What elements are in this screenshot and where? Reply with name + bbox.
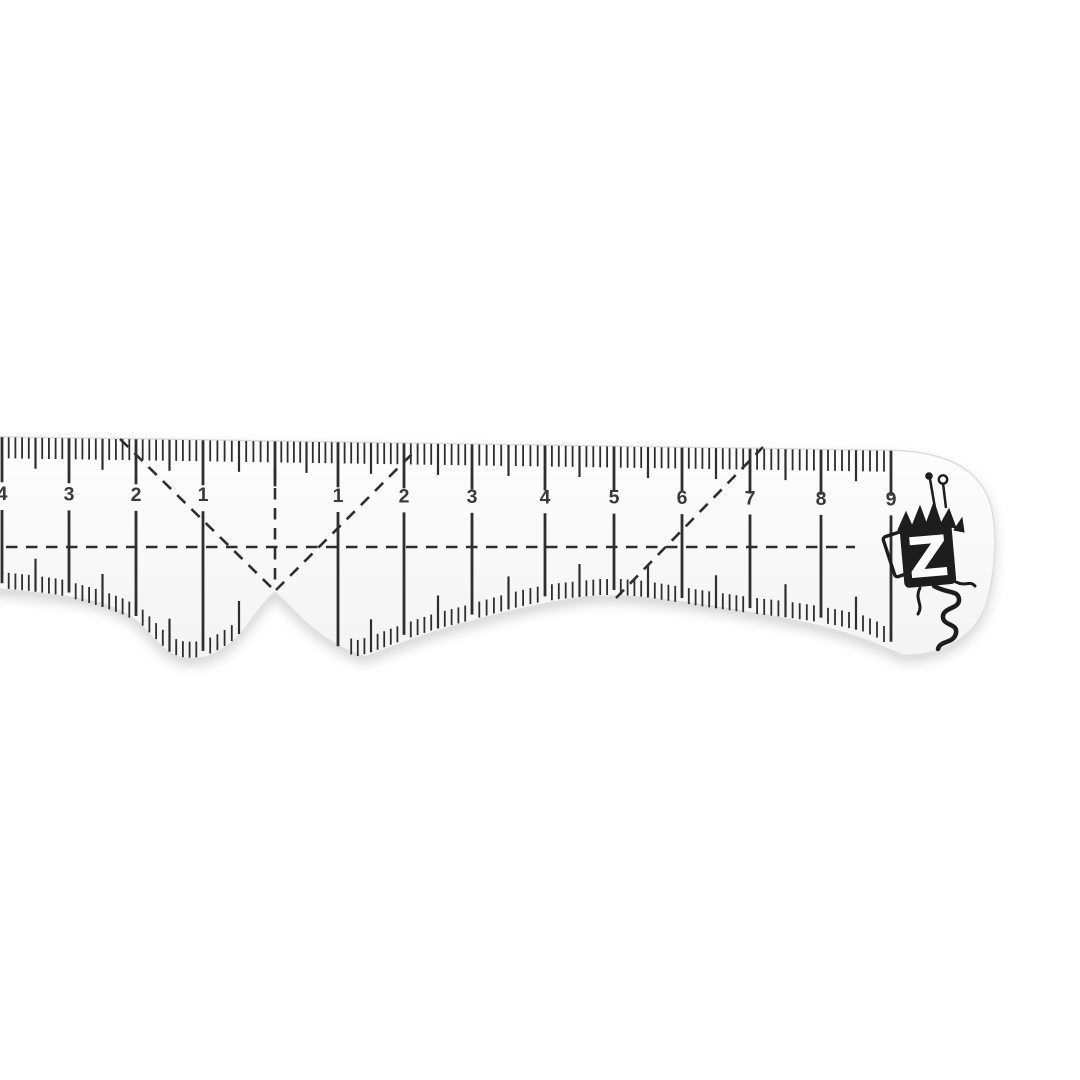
logo-thread-icon: [918, 588, 920, 614]
unit-number: 4: [0, 483, 8, 505]
unit-number: 3: [64, 483, 75, 505]
unit-number: 7: [745, 488, 756, 510]
unit-number: 1: [198, 484, 209, 506]
logo-pin-head-icon: [925, 472, 933, 480]
unit-number: 3: [467, 486, 478, 508]
unit-number: 4: [540, 486, 551, 508]
unit-number: 2: [131, 484, 142, 506]
unit-number: 9: [886, 488, 897, 510]
unit-number: 8: [816, 488, 827, 510]
unit-number: 6: [677, 487, 688, 509]
ruler-svg: 4321123456789 Z: [0, 0, 1080, 1080]
unit-number: 5: [609, 487, 620, 509]
product-photo-canvas: 4321123456789 Z: [0, 0, 1080, 1080]
unit-number: 2: [399, 485, 410, 507]
unit-number: 1: [333, 485, 344, 507]
logo-letter: Z: [905, 524, 951, 592]
